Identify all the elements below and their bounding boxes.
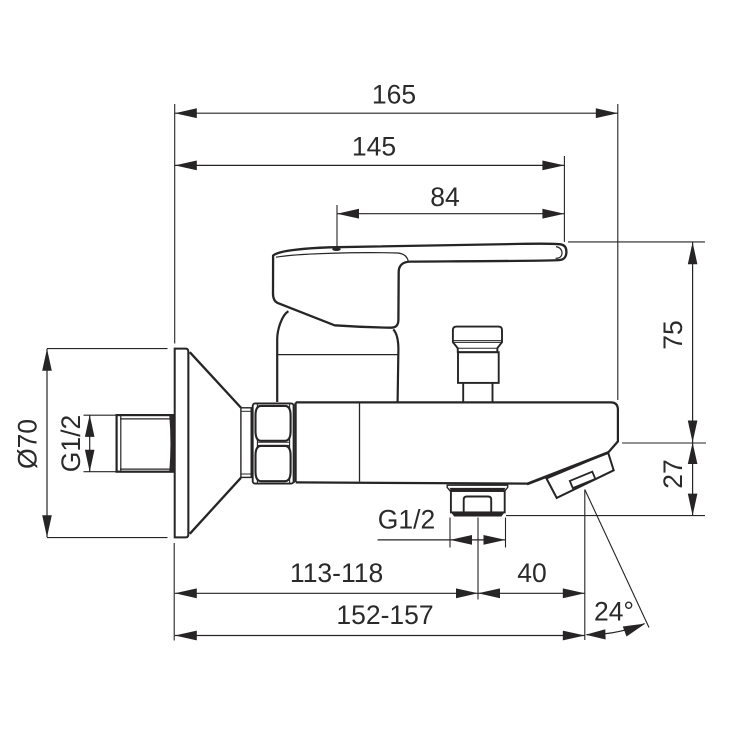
svg-text:Ø70: Ø70 xyxy=(13,419,43,469)
svg-text:113-118: 113-118 xyxy=(290,558,383,588)
svg-text:40: 40 xyxy=(517,558,546,588)
svg-text:84: 84 xyxy=(430,182,459,212)
svg-text:165: 165 xyxy=(372,80,416,110)
svg-text:G1/2: G1/2 xyxy=(56,415,86,472)
svg-text:24°: 24° xyxy=(594,597,634,627)
svg-text:145: 145 xyxy=(352,132,396,162)
svg-text:75: 75 xyxy=(658,320,688,349)
svg-text:152-157: 152-157 xyxy=(336,600,433,630)
svg-text:27: 27 xyxy=(658,459,688,488)
svg-text:G1/2: G1/2 xyxy=(378,505,435,535)
